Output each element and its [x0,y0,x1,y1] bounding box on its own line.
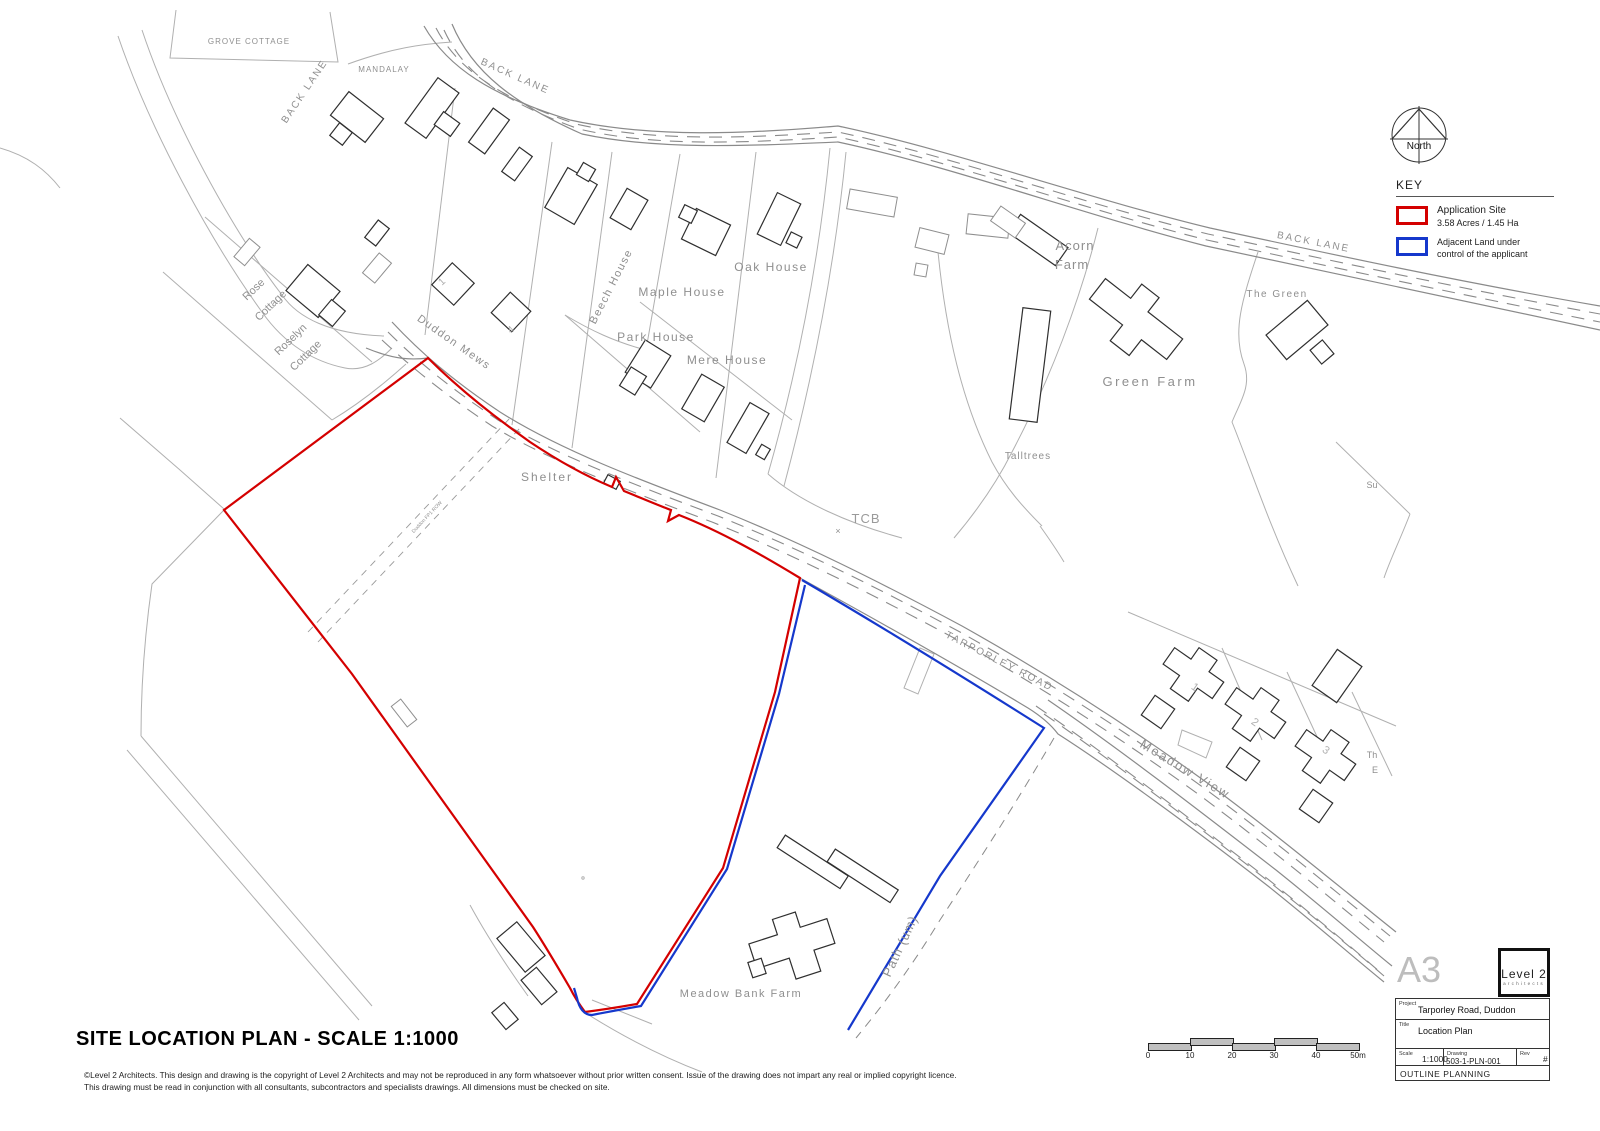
title-label: Title [1399,1022,1409,1028]
map-label-acorn-farm-2: Farm [1055,257,1089,272]
map-label-e-partial: E [1372,765,1378,775]
drawing-cell: Drawing 503-1-PLN-001 [1444,1049,1517,1065]
scale-bar: 0 10 20 30 40 50m [1148,1036,1360,1064]
title-block-table: Project Tarporley Road, Duddon Title Loc… [1395,998,1550,1081]
scale-tick: 10 [1186,1051,1195,1060]
key-heading: KEY [1396,178,1554,192]
rev-cell: Rev # [1517,1049,1548,1065]
architect-logo: Level 2 architects [1498,948,1550,997]
status-row: OUTLINE PLANNING [1396,1066,1549,1080]
key-item-label: Adjacent Land under [1437,236,1528,248]
map-label-grove-cottage: GROVE COTTAGE [208,37,290,46]
site-plan-map: GROVE COTTAGEBACK LANEMANDALAYBACK LANEB… [0,0,1600,1131]
map-label-tcb-cross: × [835,526,840,536]
key-item-application-site: Application Site 3.58 Acres / 1.45 Ha [1396,205,1554,229]
map-label-tarporley-road: TARPORLEY ROAD [943,630,1054,694]
key-legend: KEY Application Site 3.58 Acres / 1.45 H… [1396,178,1554,267]
scale-bar-segment [1148,1043,1192,1051]
map-label-talltrees: Talltrees [1005,451,1051,462]
scale-bar-segment [1232,1043,1276,1051]
footpath-dashes [308,418,1054,1038]
logo-subtitle: architects [1501,981,1547,987]
map-label-beech-house: Beech House [587,247,635,326]
map-label-th-partial: Th [1367,750,1378,760]
key-item-sublabel: 3.58 Acres / 1.45 Ha [1437,217,1519,229]
title-row: Title Location Plan [1396,1020,1549,1049]
map-label-meadow-bank-farm: Meadow Bank Farm [680,988,802,1000]
map-label-park-house: Park House [617,330,695,344]
project-value: Tarporley Road, Duddon [1396,999,1549,1018]
drawing-title: SITE LOCATION PLAN - SCALE 1:1000 [76,1028,459,1051]
map-label-su-partial: Su [1366,480,1377,490]
map-label-tcb: TCB [852,511,881,526]
paper-size-label: A3 [1395,948,1441,992]
project-label: Project [1399,1001,1416,1007]
map-label-rose: Rose [241,277,268,303]
key-item-label: Application Site [1437,205,1519,217]
scale-bar-segment [1190,1038,1234,1046]
application-site-boundary [224,358,800,1012]
map-label-path-um: Path (um) [879,913,921,979]
map-label-back-lane-top: BACK LANE [479,57,551,97]
drawing-status: OUTLINE PLANNING [1396,1066,1549,1082]
map-label-acorn-farm-1: Acorn [1056,238,1095,253]
copyright-line-2: This drawing must be read in conjunction… [84,1082,610,1092]
logo-name: Level 2 [1501,967,1547,981]
scale-tick: 20 [1228,1051,1237,1060]
map-label-back-lane-west: BACK LANE [280,58,331,126]
map-label-oak-house: Oak House [734,260,808,274]
key-rule [1396,196,1554,197]
scale-bar-segment [1274,1038,1318,1046]
map-label-mere-house: Mere House [687,353,767,367]
map-label-duddon-mews: Duddon Mews [415,313,493,373]
scale-bar-segment [1316,1043,1360,1051]
parcel-boundary-lines [0,10,1410,1072]
scale-drawing-rev-row: Scale 1:1000 Drawing 503-1-PLN-001 Rev # [1396,1049,1549,1066]
map-label-green-farm: Green Farm [1102,374,1197,389]
adjacent-land-swatch [1396,237,1428,256]
title-value: Location Plan [1396,1020,1549,1039]
project-row: Project Tarporley Road, Duddon [1396,999,1549,1020]
map-label-maple-house: Maple House [638,285,725,299]
copyright-line-1: ©Level 2 Architects. This design and dra… [84,1070,957,1080]
north-arrow: North [1382,98,1462,176]
building-outlines [234,78,1364,1030]
rev-label: Rev [1520,1051,1530,1057]
north-label: North [1407,141,1431,152]
application-site-swatch [1396,206,1428,225]
scale-tick: 30 [1270,1051,1279,1060]
scale-tick: 50m [1350,1051,1366,1060]
drawing-label: Drawing [1447,1051,1467,1057]
scale-tick: 0 [1146,1051,1150,1060]
site-location-plan-page: { "north": {"label": "North"}, "key": { … [0,0,1600,1131]
key-item-adjacent-land: Adjacent Land under control of the appli… [1396,236,1554,260]
map-label-shelter: Shelter [521,470,573,484]
map-label-mandalay: MANDALAY [358,65,409,74]
scale-label: Scale [1399,1051,1413,1057]
key-item-sublabel: control of the applicant [1437,248,1528,260]
title-block: A3 Level 2 architects Project Tarporley … [1395,948,1550,1081]
map-label-the-green: The Green [1246,289,1307,300]
scale-cell: Scale 1:1000 [1396,1049,1444,1065]
scale-tick: 40 [1312,1051,1321,1060]
